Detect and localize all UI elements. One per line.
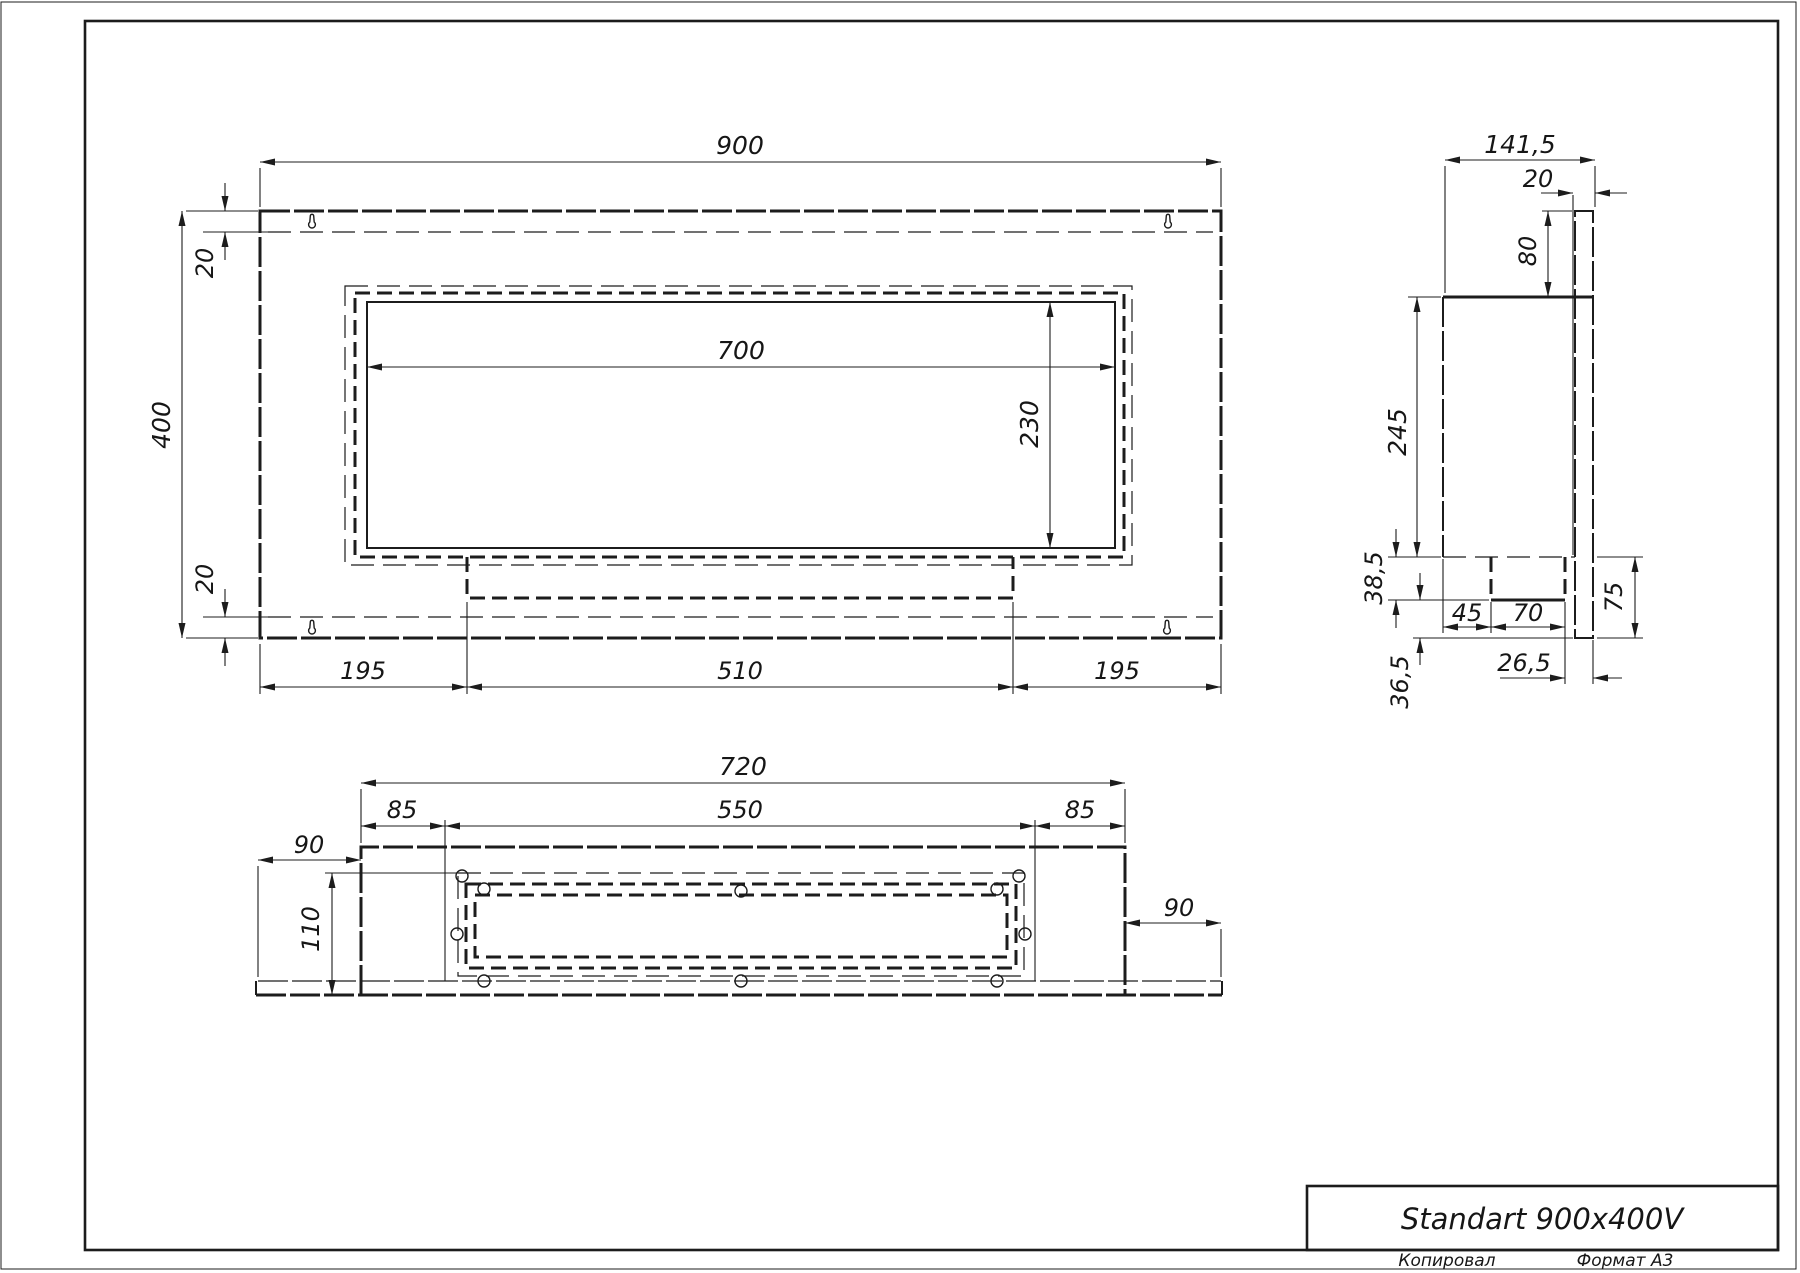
dim-bottom-plate-right: 90 (1164, 894, 1195, 922)
dim-bottom-flap-left: 85 (387, 796, 418, 824)
dim-bottom-depth: 110 (297, 906, 325, 952)
dim-window-height: 230 (1015, 400, 1044, 448)
format-label: Формат А3 (1577, 1251, 1674, 1271)
side-view: 141,5 20 80 245 38,5 45 70 75 26,5 36,5 (1360, 130, 1643, 709)
dim-side-tray-depth: 38,5 (1360, 551, 1388, 604)
dim-front-right: 195 (1094, 657, 1140, 685)
bottom-view: 720 550 85 85 90 90 110 (256, 752, 1222, 995)
dim-side-plate-tip: 36,5 (1386, 655, 1414, 708)
opening-hidden-outer (458, 873, 1024, 976)
front-view: 900 400 20 20 700 230 195 510 195 (147, 131, 1221, 694)
side-dimensions: 141,5 20 80 245 38,5 45 70 75 26,5 36,5 (1360, 130, 1643, 709)
dim-side-tray-left: 45 (1452, 599, 1483, 627)
dim-side-plate-drop: 75 (1600, 582, 1628, 613)
dim-front-left: 195 (340, 657, 386, 685)
copied-label: Копировал (1398, 1251, 1495, 1271)
dim-side-hook-height: 80 (1514, 236, 1542, 267)
wall-plate-profile (1575, 211, 1593, 638)
drawing-canvas: 900 400 20 20 700 230 195 510 195 (0, 0, 1800, 1273)
dim-bottom-body-width: 720 (719, 752, 767, 781)
dim-bottom-flap-right: 85 (1065, 796, 1096, 824)
dim-side-depth: 141,5 (1484, 130, 1556, 159)
front-dimensions: 900 400 20 20 700 230 195 510 195 (147, 131, 1221, 694)
dim-front-center: 510 (717, 657, 763, 685)
drawing-title: Standart 900x400V (1401, 1202, 1685, 1236)
dim-front-bottom-offset: 20 (191, 564, 219, 595)
dim-front-height: 400 (147, 401, 176, 449)
dim-bottom-plate-left: 90 (294, 831, 325, 859)
dim-side-hook-offset: 20 (1523, 165, 1554, 193)
body-outline (361, 847, 1125, 995)
dim-side-body-height: 245 (1383, 408, 1412, 456)
bottom-dimensions: 720 550 85 85 90 90 110 (258, 752, 1221, 995)
dim-front-width: 900 (716, 131, 764, 160)
burner-tray-hidden (467, 557, 1013, 598)
dim-front-top-offset: 20 (191, 248, 219, 279)
dim-bottom-opening-width: 550 (717, 796, 763, 824)
dim-window-width: 700 (717, 336, 765, 365)
dim-side-tray-right: 26,5 (1497, 649, 1550, 677)
title-block: Standart 900x400V Копировал Формат А3 (1307, 1186, 1778, 1271)
opening-hidden-inner (475, 895, 1007, 957)
drawing-sheet: 900 400 20 20 700 230 195 510 195 (0, 0, 1800, 1273)
dim-side-tray-width: 70 (1513, 599, 1544, 627)
